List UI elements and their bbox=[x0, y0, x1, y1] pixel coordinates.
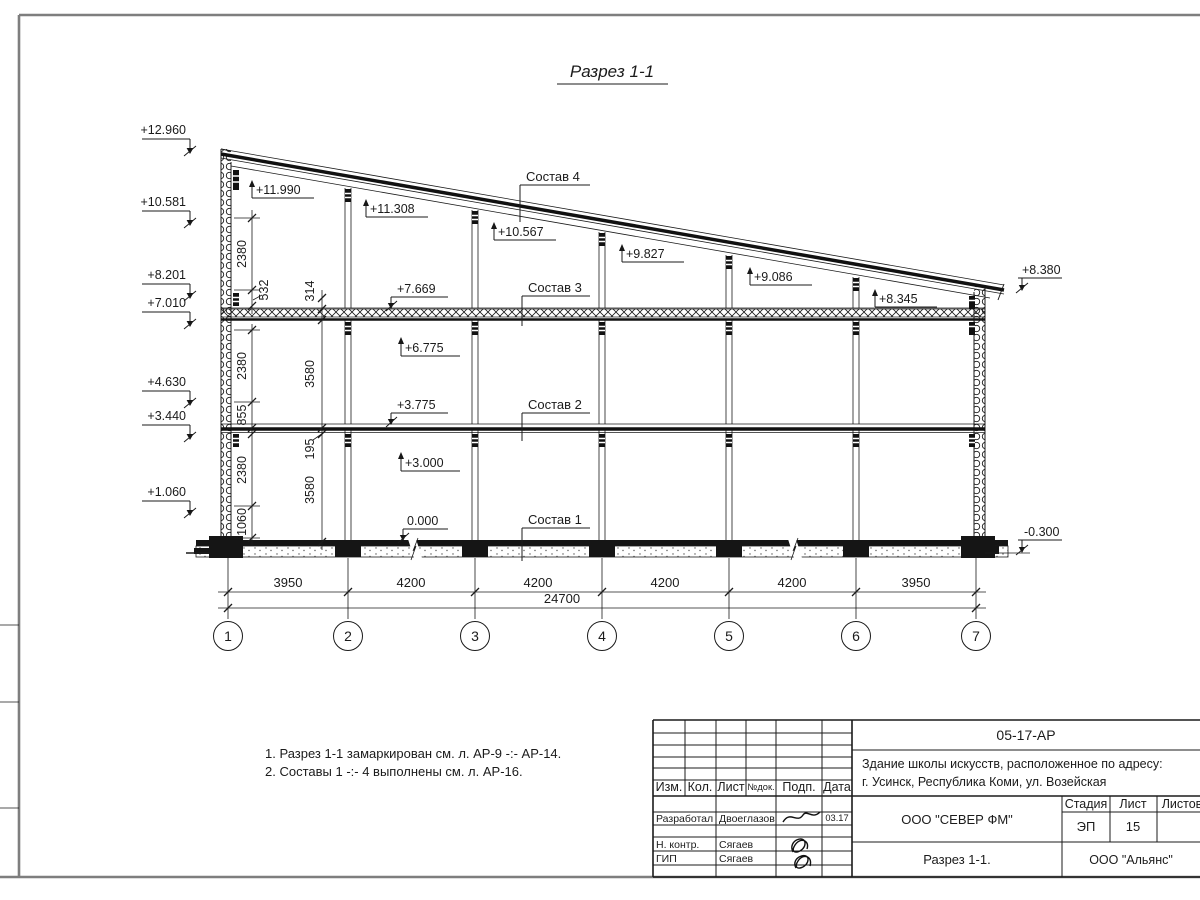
elevation-marks-left: +12.960 +10.581 +8.201 +7.010 +4.630 +3.… bbox=[140, 123, 196, 518]
sheet-label: Лист bbox=[1119, 797, 1146, 811]
dim-text: 532 bbox=[257, 280, 271, 301]
svg-text:+4.630: +4.630 bbox=[147, 375, 186, 389]
header-cell: Подп. bbox=[782, 780, 815, 794]
svg-text:+6.775: +6.775 bbox=[405, 341, 444, 355]
axis-number: 7 bbox=[972, 628, 980, 644]
elevation-mark: +8.345 bbox=[872, 289, 937, 307]
header-cell: №док. bbox=[747, 782, 774, 792]
project-name-line2: г. Усинск, Республика Коми, ул. Возейска… bbox=[862, 775, 1106, 789]
elevation-mark: +4.630 bbox=[142, 375, 196, 408]
axis-number: 2 bbox=[344, 628, 352, 644]
note-line: 1. Разрез 1-1 замаркирован см. л. АР-9 -… bbox=[265, 746, 561, 761]
dim-text: 4200 bbox=[524, 575, 553, 590]
axis-number: 4 bbox=[598, 628, 606, 644]
role-cell: Н. контр. bbox=[656, 839, 699, 851]
drawing-title: Разрез 1-1 bbox=[557, 62, 668, 84]
svg-text:+3.440: +3.440 bbox=[147, 409, 186, 423]
elevation-mark: +3.775 bbox=[386, 398, 448, 427]
svg-text:0.000: 0.000 bbox=[407, 514, 438, 528]
dim-text: 4200 bbox=[651, 575, 680, 590]
role-cell: ГИП bbox=[656, 853, 677, 865]
vertical-dimensions: 2380 532 2380 855 2380 1060 314 3580 195… bbox=[234, 210, 326, 550]
floor-slab-1 bbox=[221, 424, 985, 433]
svg-text:+8.201: +8.201 bbox=[147, 268, 186, 282]
name-cell: Двоеглазов bbox=[719, 813, 775, 825]
axis-number: 5 bbox=[725, 628, 733, 644]
dim-text: 3580 bbox=[303, 360, 317, 388]
dim-text: 3580 bbox=[303, 476, 317, 504]
leader-label: Состав 2 bbox=[522, 397, 590, 441]
sheet-title: Разрез 1-1. bbox=[923, 852, 990, 867]
dim-text: 4200 bbox=[397, 575, 426, 590]
svg-text:Состав 4: Состав 4 bbox=[526, 169, 580, 184]
elevation-mark: -0.300 bbox=[1016, 525, 1062, 555]
svg-text:+7.010: +7.010 bbox=[147, 296, 186, 310]
signatures bbox=[783, 812, 820, 868]
role-cell: Разработал bbox=[656, 813, 713, 825]
elevation-mark: +6.775 bbox=[398, 337, 460, 356]
dim-text: 195 bbox=[303, 439, 317, 460]
dim-text: 855 bbox=[235, 405, 249, 426]
header-cell: Лист bbox=[717, 780, 744, 794]
svg-text:+9.086: +9.086 bbox=[754, 270, 793, 284]
title-block-right: 05-17-АР Здание школы искусств, располож… bbox=[862, 727, 1200, 867]
dim-text: 2380 bbox=[235, 352, 249, 380]
svg-text:+3.000: +3.000 bbox=[405, 456, 444, 470]
sheets-label: Листов bbox=[1162, 797, 1200, 811]
elevation-mark: +9.086 bbox=[747, 267, 812, 285]
svg-text:+11.308: +11.308 bbox=[370, 202, 415, 216]
dim-text: 24700 bbox=[544, 591, 580, 606]
svg-text:+8.380: +8.380 bbox=[1022, 263, 1061, 277]
doc-number: 05-17-АР bbox=[996, 727, 1055, 743]
notes: 1. Разрез 1-1 замаркирован см. л. АР-9 -… bbox=[265, 746, 561, 779]
elevation-mark: +11.308 bbox=[363, 199, 428, 217]
dim-text: 2380 bbox=[235, 456, 249, 484]
svg-text:Состав 3: Состав 3 bbox=[528, 280, 582, 295]
elevation-marks-roof: +11.990 +11.308 +10.567 +9.827 +9.086 +8… bbox=[249, 180, 937, 307]
svg-text:+10.567: +10.567 bbox=[498, 225, 544, 239]
elevation-mark: +7.669 bbox=[386, 282, 448, 311]
name-cell: Сягаев bbox=[719, 853, 754, 865]
name-cell: Сягаев bbox=[719, 839, 754, 851]
svg-text:+11.990: +11.990 bbox=[256, 183, 301, 197]
svg-text:+1.060: +1.060 bbox=[147, 485, 186, 499]
title-block-signature-rows: Разработал Двоеглазов 03.17 Н. контр. Ся… bbox=[656, 812, 849, 868]
svg-text:+9.827: +9.827 bbox=[626, 247, 665, 261]
header-cell: Дата bbox=[823, 780, 851, 794]
date-cell: 03.17 bbox=[825, 813, 848, 823]
svg-text:+10.581: +10.581 bbox=[140, 195, 186, 209]
dim-text: 3950 bbox=[274, 575, 303, 590]
elevation-mark: +10.567 bbox=[491, 222, 556, 240]
elevation-mark: +11.990 bbox=[249, 180, 314, 198]
stage-label: Стадия bbox=[1065, 797, 1108, 811]
svg-text:Состав 1: Состав 1 bbox=[528, 512, 582, 527]
section-drawing-svg: Разрез 1-1 bbox=[0, 0, 1200, 900]
left-wall bbox=[221, 149, 231, 557]
elevation-mark: +1.060 bbox=[142, 485, 196, 518]
elevation-mark: +8.380 bbox=[1016, 263, 1062, 293]
svg-text:Состав 2: Состав 2 bbox=[528, 397, 582, 412]
dim-text: 314 bbox=[303, 281, 317, 302]
note-line: 2. Составы 1 -:- 4 выполнены см. л. АР-1… bbox=[265, 764, 523, 779]
svg-text:+7.669: +7.669 bbox=[397, 282, 436, 296]
axis-number: 3 bbox=[471, 628, 479, 644]
roof-slab bbox=[221, 149, 1004, 300]
dim-text: 1060 bbox=[235, 508, 249, 536]
right-wall bbox=[974, 285, 985, 557]
dim-text: 2380 bbox=[235, 240, 249, 268]
title-block: Изм. Кол. Лист №док. Подп. Дата Разработ… bbox=[653, 720, 1200, 877]
column-joints bbox=[233, 170, 975, 447]
sheet-number: 15 bbox=[1126, 819, 1140, 834]
elevation-mark: 0.000 bbox=[398, 514, 448, 543]
stage-value: ЭП bbox=[1077, 819, 1096, 834]
elevation-mark: +9.827 bbox=[619, 244, 684, 262]
svg-text:+12.960: +12.960 bbox=[140, 123, 186, 137]
company-name: ООО "СЕВЕР ФМ" bbox=[901, 812, 1013, 827]
elevation-mark: +10.581 bbox=[140, 195, 196, 228]
contractor-name: ООО "Альянс" bbox=[1089, 853, 1173, 867]
elevation-marks-floors: +7.669 +6.775 +3.775 +3.000 0.000 +8.380 bbox=[386, 263, 1062, 555]
leader-label: Состав 4 bbox=[520, 169, 590, 222]
ground-slab bbox=[186, 536, 1030, 560]
floor-slab-2 bbox=[221, 308, 985, 320]
axis-number: 6 bbox=[852, 628, 860, 644]
project-name-line1: Здание школы искусств, расположенное по … bbox=[862, 757, 1163, 771]
axis-number: 1 bbox=[224, 628, 232, 644]
elevation-mark: +3.000 bbox=[398, 452, 460, 471]
elevation-mark: +12.960 bbox=[140, 123, 196, 156]
drawing-sheet: Разрез 1-1 bbox=[0, 0, 1200, 900]
svg-text:+8.345: +8.345 bbox=[879, 292, 918, 306]
axis-bubbles: 1 2 3 4 5 6 7 bbox=[214, 622, 991, 651]
svg-text:-0.300: -0.300 bbox=[1024, 525, 1059, 539]
dim-text: 3950 bbox=[902, 575, 931, 590]
elevation-mark: +3.440 bbox=[142, 409, 196, 442]
elevation-mark: +7.010 bbox=[142, 296, 196, 329]
header-cell: Изм. bbox=[656, 780, 683, 794]
header-cell: Кол. bbox=[688, 780, 713, 794]
svg-text:+3.775: +3.775 bbox=[397, 398, 436, 412]
drawing-title-text: Разрез 1-1 bbox=[570, 62, 654, 81]
bottom-dimensions: 3950 4200 4200 4200 4200 3950 24700 1 2 … bbox=[214, 558, 991, 651]
dim-text: 4200 bbox=[778, 575, 807, 590]
